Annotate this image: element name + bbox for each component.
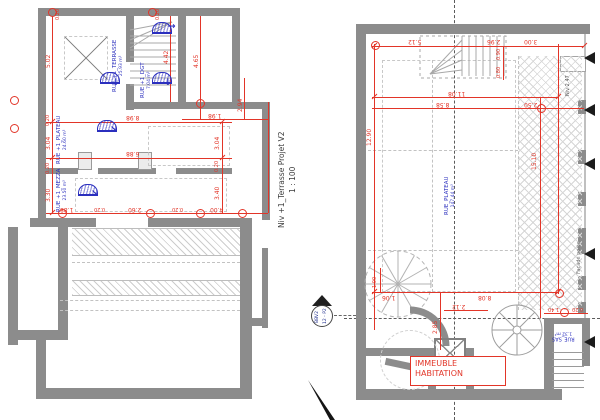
window-marker-icon: [584, 104, 595, 116]
wall: [178, 16, 186, 104]
dimension-label: 8.98: [126, 114, 139, 120]
dimension-line: [46, 213, 268, 214]
dimension-label: 3.30: [46, 189, 52, 202]
room-name: RUE +1_MEZZA: [56, 169, 62, 212]
level-marker-icon: →: [152, 22, 178, 44]
dimension-label: 1.00: [373, 277, 378, 288]
annotation-box: IMMEUBLE HABITATION: [410, 356, 506, 386]
wall: [38, 8, 240, 16]
dimension-label: 1.40: [548, 306, 559, 311]
level-marker-icon: ↘: [97, 120, 123, 142]
dimension-label: 3.04: [46, 137, 52, 150]
dimension-line: [558, 44, 559, 294]
grid-line: [368, 150, 518, 151]
plan-title: Niv +1_Terrasse Projet V2: [276, 131, 287, 228]
wall: [356, 24, 590, 34]
room-name: RUE_PLATEAU: [444, 176, 450, 215]
dimension-label: 15.10: [532, 153, 538, 170]
room-area: 23.50 m²: [63, 169, 68, 212]
dimension-label: 4.65: [194, 55, 200, 68]
wall: [232, 8, 240, 104]
level-note: Niv 2.47: [566, 75, 571, 96]
room-label: RUE +1_DGT 7.04 m²: [140, 62, 152, 98]
dimension-line: [46, 122, 232, 123]
wall: [250, 318, 264, 326]
dimension-line: [372, 108, 584, 109]
corner-mark: [238, 209, 247, 218]
dimension-label: 8.08: [478, 294, 491, 300]
roof-hatch: [72, 228, 240, 256]
wall: [8, 330, 68, 340]
roof-hatch: [72, 280, 240, 296]
level-marker-icon: ↓: [100, 72, 126, 94]
wall: [366, 389, 562, 400]
wall: [58, 227, 68, 337]
corner-mark: [196, 99, 205, 108]
facade-note: Façade porte: [577, 242, 582, 274]
dimension-label: 0.20: [46, 115, 51, 126]
corner-mark: [555, 289, 564, 298]
window-marker-icon: [584, 248, 595, 260]
stair: [550, 352, 584, 390]
annotation-line: IMMEUBLE: [415, 359, 501, 369]
dimension-label: 4.42: [164, 51, 170, 64]
room-name: RUE +1_DGT: [140, 62, 146, 98]
room-label: RUE +1_PLATEAU 24.60 m²: [56, 116, 68, 164]
section-marker-bottom-label: 12 - P2: [323, 308, 328, 324]
dimension-label: 5.02: [46, 55, 52, 68]
wall: [240, 218, 252, 399]
dimension-line: [540, 97, 541, 318]
roof-line: [60, 310, 240, 311]
dimension-line: [372, 292, 558, 293]
dimension-label: 2.85: [433, 321, 439, 334]
corner-mark: [537, 104, 546, 113]
title-block: Niv +1_Terrasse Projet V2 1 : 100: [276, 131, 299, 228]
north-needle-icon: [296, 380, 342, 420]
dimension-line: [372, 97, 558, 98]
spiral-stair: [488, 300, 546, 360]
dimension-label: 8.58: [436, 101, 449, 107]
dimension-label: 3.04: [215, 137, 221, 150]
dimension-label: 0.20: [172, 206, 183, 211]
wall: [356, 24, 366, 400]
corner-mark: [196, 209, 205, 218]
corner-mark: [10, 124, 19, 133]
wall: [30, 218, 96, 227]
dimension-label: 1.06: [382, 294, 395, 300]
dimension-line: [52, 16, 53, 214]
window-marker-icon: [584, 52, 595, 64]
drawing-canvas: 0.20 0.20 5.02 0.20 3.04 0.20 3.30 4.42 …: [0, 0, 600, 420]
dimension-label: 11.08: [448, 90, 465, 96]
dimension-line: [268, 102, 269, 213]
dimension-line: [372, 46, 584, 47]
corner-mark: [371, 41, 380, 50]
room-name: RUE_SAS: [552, 335, 575, 341]
dimension-label: 0.20: [156, 9, 161, 20]
dimension-label: 12.90: [367, 129, 373, 146]
facade-hatch: [518, 56, 582, 310]
wall: [36, 388, 252, 399]
dimension-line: [222, 122, 223, 213]
corner-mark: [146, 209, 155, 218]
dimension-line: [440, 292, 441, 350]
room-name: RUE +1_PLATEAU: [56, 116, 62, 164]
room-label: RUE_SAS 1.32 m²: [552, 330, 575, 341]
dimension-line: [444, 310, 488, 311]
dimension-label: 5.12: [408, 38, 421, 44]
dimension-label: 3.40: [215, 187, 221, 200]
wall: [148, 218, 240, 227]
wall: [262, 248, 268, 328]
dimension-label: 2.12: [452, 303, 465, 309]
corner-mark: [10, 96, 19, 105]
dimension-label: 2.96: [487, 38, 500, 44]
room-label: RUE_PLATEAU 147.44 m²: [444, 176, 456, 215]
dimension-line: [46, 158, 232, 159]
dimension-label: 2.50: [524, 101, 537, 107]
dimension-line: [244, 78, 245, 119]
dimension-label: 0.20: [56, 9, 61, 20]
dimension-label: 0.80: [497, 67, 502, 78]
grid-line: [518, 56, 519, 310]
level-marker-icon: ↘: [78, 184, 104, 206]
wall: [176, 168, 232, 174]
wall: [8, 227, 18, 345]
room-area: 1.32 m²: [552, 330, 575, 335]
section-marker-top-label: BBV2: [315, 311, 320, 323]
dimension-label: 6.88: [126, 150, 139, 156]
dimension-line: [380, 268, 381, 292]
dimension-label: 0.20: [215, 161, 220, 172]
dimension-label: 0.20: [94, 206, 105, 211]
room-label: RUE +1_MEZZA 23.50 m²: [56, 169, 68, 212]
column: [78, 152, 92, 170]
dimension-label: 0.20: [572, 306, 583, 311]
roof-line: [60, 300, 240, 301]
room-area: 147.44 m²: [451, 176, 456, 215]
roof-line: [72, 262, 240, 263]
annotation-line: HABITATION: [415, 369, 501, 379]
dimension-line: [503, 46, 504, 80]
window-marker-icon: [584, 158, 595, 170]
level-marker-icon: ↓: [152, 72, 178, 94]
scale-label: 1 : 100: [287, 131, 298, 228]
corner-mark: [560, 308, 569, 317]
room-area: 24.60 m²: [63, 116, 68, 164]
dimension-label: 2.60: [128, 206, 141, 212]
dimension-label: 3.00: [524, 38, 537, 44]
dimension-label: 1.98: [208, 112, 221, 118]
dimension-label: 4.00: [210, 206, 223, 212]
dimension-label: 0.90: [497, 49, 502, 60]
dimension-label: 2.94: [238, 99, 244, 112]
window-marker-icon: [584, 336, 595, 348]
dimension-label: 0.20: [46, 163, 51, 174]
wall: [36, 340, 46, 392]
